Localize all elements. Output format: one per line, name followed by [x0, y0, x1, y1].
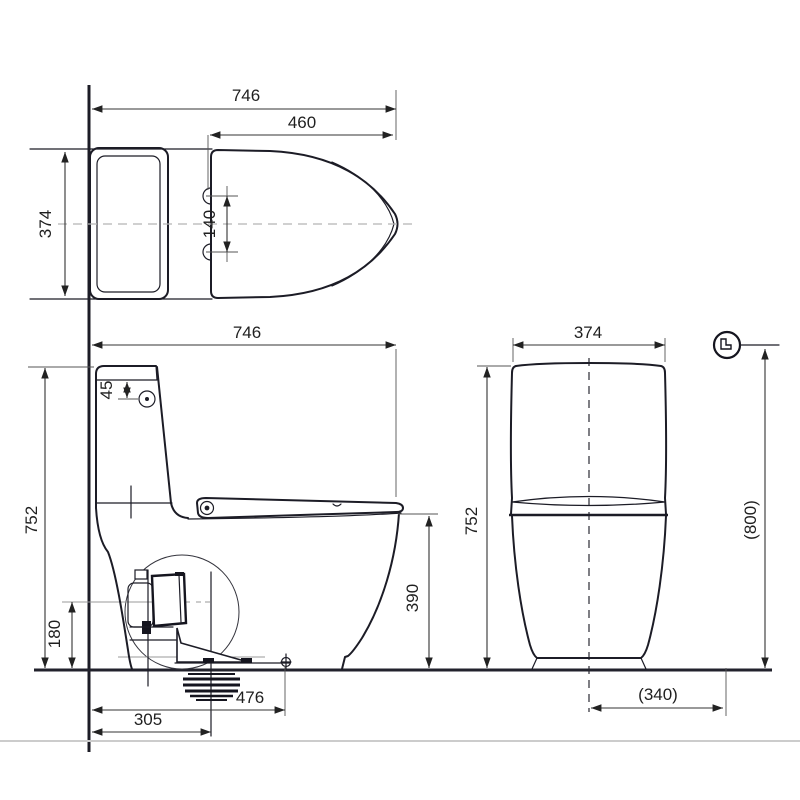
dim-label-side-746: 746	[233, 323, 261, 342]
dim-label-side-180: 180	[45, 620, 64, 648]
dim-label-side-390: 390	[403, 584, 422, 612]
flush-button-dot	[145, 397, 149, 401]
overflow-tube	[135, 570, 147, 579]
valve-pipe	[128, 583, 153, 627]
bowl-side	[96, 503, 401, 669]
dim-label-front-800: (800)	[741, 500, 760, 540]
reference-lines	[0, 85, 800, 752]
view-front	[509, 358, 668, 712]
front-body	[509, 363, 668, 669]
dimension-drawing: 746 460 374 140	[0, 0, 800, 800]
dim-label-top-374: 374	[36, 210, 55, 238]
dim-label-front-340: (340)	[638, 685, 678, 704]
view-side	[62, 366, 403, 736]
dim-label-top-460: 460	[288, 113, 316, 132]
dim-label-top-746: 746	[232, 86, 260, 105]
valve-cap	[175, 572, 184, 576]
dim-label-front-752: 752	[462, 507, 481, 535]
dim-label-top-140: 140	[200, 210, 219, 238]
dim-label-front-374: 374	[574, 323, 602, 342]
flush-mechanism	[62, 570, 291, 736]
dim-label-side-752: 752	[22, 506, 41, 534]
dim-label-side-45: 45	[97, 381, 116, 400]
drawing-svg: 746 460 374 140	[0, 0, 800, 800]
seat-open-indicator	[714, 332, 740, 358]
dim-label-side-476: 476	[236, 688, 264, 707]
dim-label-side-305: 305	[134, 710, 162, 729]
floor-bolt	[281, 654, 291, 670]
